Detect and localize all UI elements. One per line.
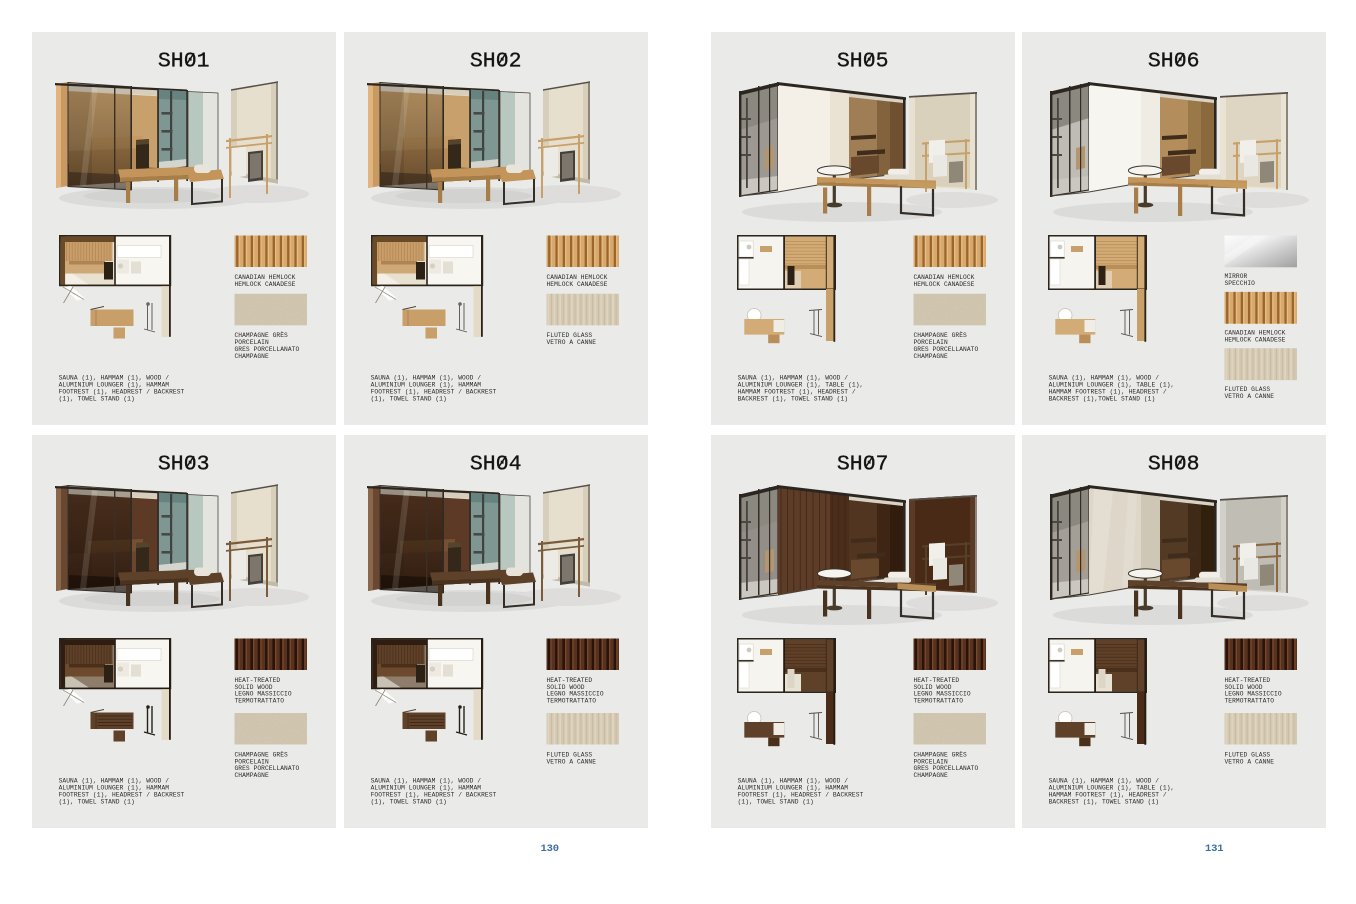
svg-text:BACKREST (1), TOWEL STAND (1): BACKREST (1), TOWEL STAND (1)	[738, 396, 849, 403]
svg-text:FOOTREST (1), HEADREST / BACKR: FOOTREST (1), HEADREST / BACKREST	[371, 389, 497, 396]
svg-text:TERMOTRATTATO: TERMOTRATTATO	[547, 698, 597, 705]
svg-text:(1), TOWEL STAND (1): (1), TOWEL STAND (1)	[738, 799, 814, 806]
svg-text:TERMOTRATTATO: TERMOTRATTATO	[1225, 698, 1275, 705]
svg-text:(1), TOWEL STAND (1): (1), TOWEL STAND (1)	[59, 396, 135, 403]
svg-text:CHAMPAGNE: CHAMPAGNE	[914, 353, 948, 360]
svg-text:SAUNA (1), HAMMAM (1), WOOD /: SAUNA (1), HAMMAM (1), WOOD /	[738, 375, 849, 382]
svg-text:SAUNA (1), HAMMAM (1), WOOD /: SAUNA (1), HAMMAM (1), WOOD /	[1049, 375, 1160, 382]
svg-text:SH02: SH02	[470, 50, 522, 74]
svg-text:TERMOTRATTATO: TERMOTRATTATO	[914, 698, 964, 705]
svg-text:ALUMINIUM LOUNGER (1), TABLE (: ALUMINIUM LOUNGER (1), TABLE (1),	[738, 382, 864, 389]
svg-text:FOOTREST (1), HEADREST / BACKR: FOOTREST (1), HEADREST / BACKREST	[59, 389, 185, 396]
svg-text:HEMLOCK CANADESE: HEMLOCK CANADESE	[914, 281, 975, 288]
svg-text:FOOTREST (1), HEADREST / BACKR: FOOTREST (1), HEADREST / BACKREST	[59, 792, 185, 799]
svg-text:BACKREST (1),TOWEL STAND (1): BACKREST (1),TOWEL STAND (1)	[1049, 396, 1156, 403]
svg-text:HAMMAM FOOTREST (1), HEADREST: HAMMAM FOOTREST (1), HEADREST /	[738, 389, 856, 396]
svg-text:BACKREST (1), TOWEL STAND (1): BACKREST (1), TOWEL STAND (1)	[1049, 799, 1160, 806]
svg-text:SAUNA (1), HAMMAM (1), WOOD /: SAUNA (1), HAMMAM (1), WOOD /	[59, 778, 170, 785]
svg-text:FOOTREST (1), HEADREST / BACKR: FOOTREST (1), HEADREST / BACKREST	[371, 792, 497, 799]
svg-text:(1), TOWEL STAND (1): (1), TOWEL STAND (1)	[371, 396, 447, 403]
svg-text:HAMMAM FOOTREST (1), HEADREST: HAMMAM FOOTREST (1), HEADREST /	[1049, 389, 1167, 396]
svg-text:VETRO A CANNE: VETRO A CANNE	[547, 339, 597, 346]
svg-text:VETRO A CANNE: VETRO A CANNE	[1225, 393, 1275, 400]
svg-text:SPECCHIO: SPECCHIO	[1225, 280, 1256, 287]
svg-text:SH03: SH03	[158, 453, 210, 477]
svg-text:SAUNA (1), HAMMAM (1), WOOD /: SAUNA (1), HAMMAM (1), WOOD /	[371, 778, 482, 785]
svg-text:ALUMINIUM LOUNGER (1), TABLE (: ALUMINIUM LOUNGER (1), TABLE (1),	[1049, 785, 1175, 792]
svg-text:ALUMINIUM LOUNGER (1), HAMMAM: ALUMINIUM LOUNGER (1), HAMMAM	[371, 785, 482, 792]
svg-text:VETRO A CANNE: VETRO A CANNE	[547, 758, 597, 765]
svg-text:SH07: SH07	[837, 453, 889, 477]
svg-text:SAUNA (1), HAMMAM (1), WOOD /: SAUNA (1), HAMMAM (1), WOOD /	[59, 375, 170, 382]
svg-text:SAUNA (1), HAMMAM (1), WOOD /: SAUNA (1), HAMMAM (1), WOOD /	[1049, 778, 1160, 785]
svg-text:HAMMAM FOOTREST (1), HEADREST: HAMMAM FOOTREST (1), HEADREST /	[1049, 792, 1167, 799]
svg-text:SAUNA (1), HAMMAM (1), WOOD /: SAUNA (1), HAMMAM (1), WOOD /	[738, 778, 849, 785]
svg-text:HEMLOCK CANADESE: HEMLOCK CANADESE	[1225, 337, 1286, 344]
svg-text:SH04: SH04	[470, 453, 522, 477]
svg-text:ALUMINIUM LOUNGER (1), HAMMAM: ALUMINIUM LOUNGER (1), HAMMAM	[371, 382, 482, 389]
svg-text:ALUMINIUM LOUNGER (1), HAMMAM: ALUMINIUM LOUNGER (1), HAMMAM	[59, 382, 170, 389]
svg-text:ALUMINIUM LOUNGER (1), HAMMAM: ALUMINIUM LOUNGER (1), HAMMAM	[738, 785, 849, 792]
svg-text:ALUMINIUM LOUNGER (1), HAMMAM: ALUMINIUM LOUNGER (1), HAMMAM	[59, 785, 170, 792]
svg-text:HEMLOCK CANADESE: HEMLOCK CANADESE	[235, 281, 296, 288]
svg-text:SH06: SH06	[1148, 50, 1200, 74]
svg-text:FOOTREST (1), HEADREST / BACKR: FOOTREST (1), HEADREST / BACKREST	[738, 792, 864, 799]
svg-text:SH08: SH08	[1148, 453, 1200, 477]
svg-text:CHAMPAGNE: CHAMPAGNE	[914, 772, 948, 779]
svg-text:HEMLOCK CANADESE: HEMLOCK CANADESE	[547, 281, 608, 288]
svg-text:TERMOTRATTATO: TERMOTRATTATO	[235, 698, 285, 705]
svg-text:(1), TOWEL STAND (1): (1), TOWEL STAND (1)	[371, 799, 447, 806]
svg-text:SH05: SH05	[837, 50, 889, 74]
svg-text:VETRO A CANNE: VETRO A CANNE	[1225, 758, 1275, 765]
svg-text:CHAMPAGNE: CHAMPAGNE	[235, 353, 269, 360]
svg-text:(1), TOWEL STAND (1): (1), TOWEL STAND (1)	[59, 799, 135, 806]
svg-text:ALUMINIUM LOUNGER (1), TABLE (: ALUMINIUM LOUNGER (1), TABLE (1),	[1049, 382, 1175, 389]
svg-text:CHAMPAGNE: CHAMPAGNE	[235, 772, 269, 779]
svg-text:SH01: SH01	[158, 50, 210, 74]
svg-text:SAUNA (1), HAMMAM (1), WOOD /: SAUNA (1), HAMMAM (1), WOOD /	[371, 375, 482, 382]
